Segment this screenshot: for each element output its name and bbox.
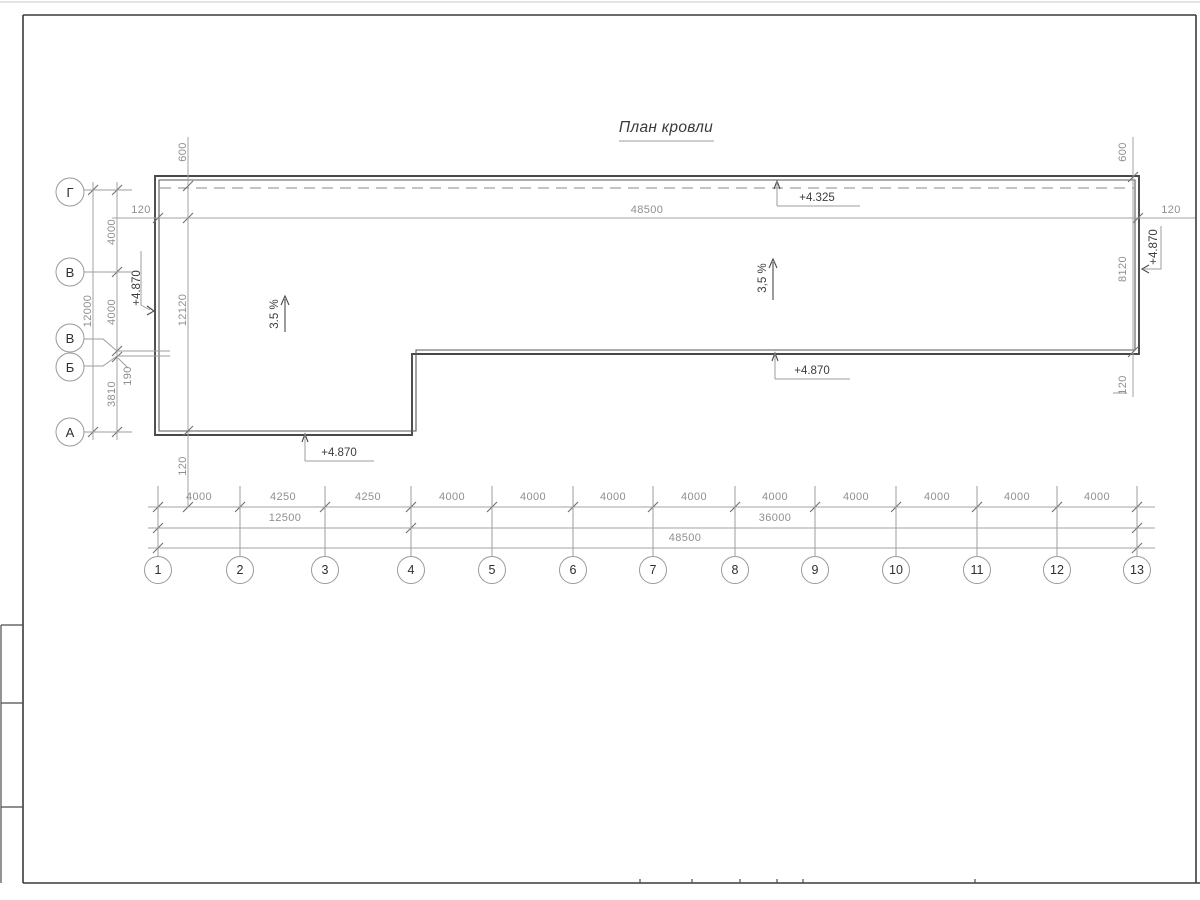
slope-label-left: 3.5 % xyxy=(269,299,281,328)
axis-number-6: 6 xyxy=(570,563,577,577)
dim-bay-12-13: 4000 xyxy=(1084,491,1110,503)
dim-roof-12120: 12120 xyxy=(177,294,189,327)
top-dimension-line: 120 48500 120 xyxy=(112,204,1195,223)
axis-number-13: 13 xyxy=(1130,563,1144,577)
dim-parapet-120-bottom-right: 120 xyxy=(1117,375,1129,395)
slope-label-right: 3,5 % xyxy=(757,263,769,292)
bottom-axis-extensions xyxy=(158,486,1137,556)
axis-number-8: 8 xyxy=(732,563,739,577)
bottom-axis-circles: 1 2 3 4 5 6 7 8 9 10 11 12 13 xyxy=(145,557,1151,584)
axis-letter-b: Б xyxy=(66,360,75,375)
dim-total-48500-bottom: 48500 xyxy=(669,532,702,544)
axis-number-7: 7 xyxy=(650,563,657,577)
dim-bay-4-5: 4000 xyxy=(439,491,465,503)
dim-seg-190: 190 xyxy=(122,366,134,386)
dim-bay-8-9: 4000 xyxy=(762,491,788,503)
axis-letter-g: Г xyxy=(66,185,73,200)
dim-bay-2-3: 4250 xyxy=(270,491,296,503)
dim-height-8120: 8120 xyxy=(1117,256,1129,282)
dim-bay-11-12: 4000 xyxy=(1004,491,1030,503)
axis-number-2: 2 xyxy=(237,563,244,577)
axis-number-4: 4 xyxy=(408,563,415,577)
dim-overall-12000: 12000 xyxy=(82,295,94,328)
axis-number-12: 12 xyxy=(1050,563,1064,577)
dim-subtotal-12500: 12500 xyxy=(269,512,302,524)
axis-number-11: 11 xyxy=(971,563,984,577)
dim-bay-10-11: 4000 xyxy=(924,491,950,503)
dim-bay-5-6: 4000 xyxy=(520,491,546,503)
bottom-dimension-rows: 4000 4250 4250 4000 4000 4000 4000 4000 … xyxy=(148,491,1155,553)
axis-number-10: 10 xyxy=(889,563,903,577)
left-dimension-column: 600 12000 4000 4000 190 3810 12120 120 +… xyxy=(82,137,193,512)
axis-letter-a: А xyxy=(66,425,75,440)
roof-annotations: 3.5 % 3,5 % +4.325 +4.870 +4.870 xyxy=(269,181,860,461)
roof-plan-canvas: План кровли 120 48500 120 xyxy=(0,0,1200,900)
dim-bay-1-2: 4000 xyxy=(186,491,212,503)
dim-subtotal-36000: 36000 xyxy=(759,512,792,524)
elevation-bottom-right: +4.870 xyxy=(794,365,830,377)
page-title: План кровли xyxy=(619,119,713,136)
axis-number-9: 9 xyxy=(812,563,819,577)
axis-letter-v1: В xyxy=(66,265,75,280)
axis-number-5: 5 xyxy=(489,563,496,577)
dim-total-48500-top: 48500 xyxy=(631,204,664,216)
dim-bay-6-7: 4000 xyxy=(600,491,626,503)
dim-parapet-600-right: 600 xyxy=(1117,142,1129,162)
dim-seg-4000-b: 4000 xyxy=(106,299,118,325)
elevation-ridge: +4.325 xyxy=(799,192,835,204)
dim-seg-4000-a: 4000 xyxy=(106,219,118,245)
dim-bay-9-10: 4000 xyxy=(843,491,869,503)
axis-number-3: 3 xyxy=(322,563,329,577)
dim-parapet-120-bottom-left: 120 xyxy=(177,456,189,476)
dim-bay-7-8: 4000 xyxy=(681,491,707,503)
dim-parapet-right-120: 120 xyxy=(1161,204,1181,216)
dim-parapet-left-120: 120 xyxy=(131,204,151,216)
dim-seg-3810: 3810 xyxy=(106,381,118,407)
drawing-title: План кровли xyxy=(619,119,714,141)
sheet-frame xyxy=(0,2,1200,883)
elevation-bottom-left: +4.870 xyxy=(321,447,357,459)
dim-bay-3-4: 4250 xyxy=(355,491,381,503)
axis-letter-v2: В xyxy=(66,331,75,346)
elevation-right: +4.870 xyxy=(1148,229,1160,265)
axis-number-1: 1 xyxy=(155,563,162,577)
drawing-sheet: План кровли 120 48500 120 xyxy=(0,0,1200,900)
dim-parapet-600-left: 600 xyxy=(177,142,189,162)
